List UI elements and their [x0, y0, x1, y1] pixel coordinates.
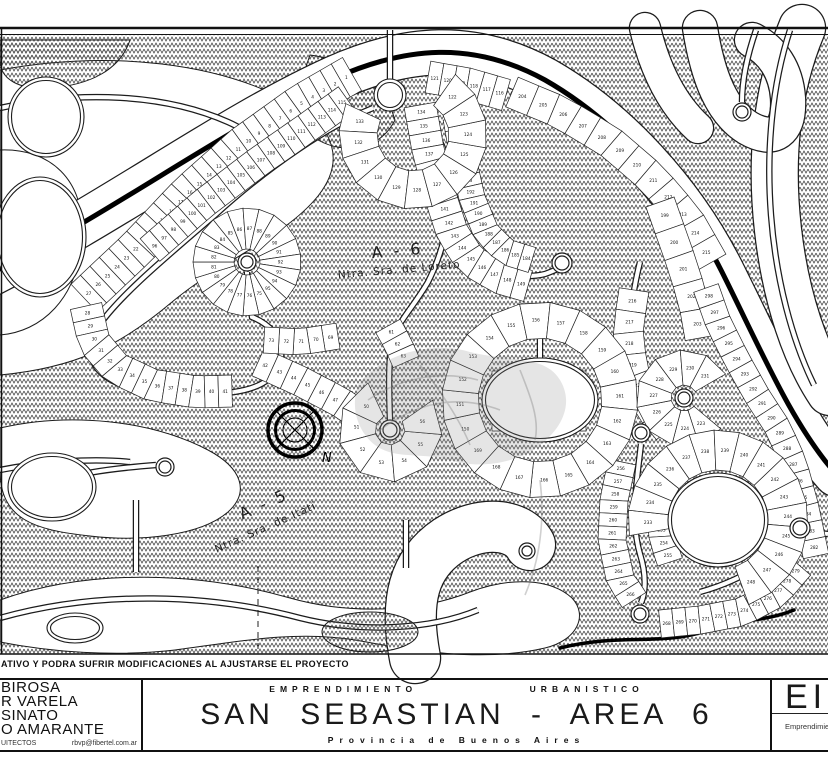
svg-text:233: 233: [644, 520, 652, 526]
svg-text:214: 214: [691, 230, 699, 236]
svg-text:128: 128: [413, 188, 421, 194]
svg-text:273: 273: [728, 612, 736, 618]
svg-text:168: 168: [492, 465, 500, 471]
svg-text:210: 210: [633, 163, 641, 169]
svg-text:244: 244: [784, 514, 792, 520]
svg-text:2: 2: [334, 81, 337, 87]
svg-text:187: 187: [492, 240, 500, 246]
svg-text:134: 134: [417, 110, 425, 116]
svg-text:97: 97: [161, 235, 167, 241]
svg-text:254: 254: [660, 541, 668, 547]
svg-text:7: 7: [279, 116, 282, 122]
svg-text:131: 131: [361, 159, 369, 165]
svg-text:88: 88: [256, 228, 262, 234]
svg-text:110: 110: [287, 136, 295, 142]
svg-text:161: 161: [616, 393, 624, 399]
svg-text:199: 199: [661, 213, 669, 219]
svg-text:242: 242: [771, 477, 779, 483]
svg-text:10: 10: [246, 139, 252, 145]
svg-text:43: 43: [277, 369, 283, 375]
svg-text:115: 115: [338, 100, 346, 106]
svg-text:276: 276: [764, 596, 772, 602]
svg-text:165: 165: [565, 472, 573, 478]
svg-text:87: 87: [247, 226, 253, 232]
svg-text:103: 103: [217, 188, 225, 194]
svg-text:46: 46: [319, 390, 325, 396]
svg-text:216: 216: [628, 298, 636, 304]
svg-text:261: 261: [608, 531, 616, 537]
disclaimer-note: ATIVO Y PODRA SUFRIR MODIFICACIONES AL A…: [1, 659, 349, 669]
svg-text:90: 90: [272, 241, 278, 247]
svg-text:28: 28: [85, 310, 91, 316]
svg-text:112: 112: [308, 122, 316, 128]
svg-text:13: 13: [216, 164, 222, 170]
svg-text:111: 111: [297, 129, 305, 135]
svg-text:235: 235: [654, 482, 662, 488]
svg-text:211: 211: [649, 178, 657, 184]
svg-text:209: 209: [616, 148, 624, 154]
svg-text:159: 159: [598, 347, 606, 353]
svg-text:85: 85: [228, 231, 234, 237]
svg-text:105: 105: [237, 173, 245, 179]
svg-text:225: 225: [664, 422, 672, 428]
svg-text:230: 230: [686, 366, 694, 372]
svg-text:26: 26: [95, 282, 101, 288]
svg-text:52: 52: [360, 447, 366, 453]
svg-text:82: 82: [211, 255, 217, 261]
svg-text:297: 297: [710, 310, 718, 316]
svg-text:47: 47: [333, 397, 339, 403]
profession-label: UITECTOS: [1, 740, 36, 747]
svg-text:288: 288: [783, 446, 791, 452]
svg-text:147: 147: [490, 272, 498, 278]
svg-text:3: 3: [322, 88, 325, 94]
svg-text:29: 29: [88, 324, 94, 330]
svg-text:141: 141: [440, 207, 448, 213]
svg-text:229: 229: [669, 367, 677, 373]
sheet-label: Emprendimient: [785, 722, 828, 731]
svg-text:108: 108: [267, 151, 275, 157]
svg-text:81: 81: [211, 265, 217, 271]
svg-text:265: 265: [619, 581, 627, 587]
svg-text:156: 156: [532, 318, 540, 324]
svg-text:204: 204: [518, 94, 526, 100]
svg-text:271: 271: [702, 617, 710, 623]
svg-text:5: 5: [300, 101, 303, 107]
svg-text:258: 258: [611, 492, 619, 498]
svg-text:259: 259: [610, 505, 618, 511]
svg-text:124: 124: [464, 132, 472, 138]
svg-text:11: 11: [236, 147, 242, 153]
svg-text:143: 143: [451, 233, 459, 239]
svg-text:287: 287: [789, 462, 797, 468]
svg-text:121: 121: [430, 76, 438, 82]
svg-text:215: 215: [702, 250, 710, 256]
svg-text:205: 205: [539, 103, 547, 109]
svg-text:117: 117: [483, 87, 491, 93]
svg-text:N: N: [322, 451, 332, 466]
svg-text:240: 240: [740, 453, 748, 459]
sheet-number-box: EI Emprendimient: [772, 680, 828, 750]
svg-text:130: 130: [374, 175, 382, 181]
watermark-sketch: [355, 348, 566, 465]
svg-text:208: 208: [598, 135, 606, 141]
svg-text:290: 290: [767, 416, 775, 422]
svg-text:241: 241: [757, 463, 765, 469]
svg-text:23: 23: [124, 255, 130, 261]
svg-text:51: 51: [354, 425, 360, 431]
svg-text:100: 100: [188, 211, 196, 217]
svg-text:70: 70: [313, 337, 319, 343]
svg-text:80: 80: [214, 274, 220, 280]
svg-text:31: 31: [98, 348, 104, 354]
svg-text:94: 94: [272, 279, 278, 285]
svg-text:109: 109: [277, 143, 285, 149]
svg-text:262: 262: [609, 544, 617, 550]
svg-text:1: 1: [345, 75, 348, 81]
svg-text:96: 96: [152, 244, 158, 250]
svg-text:24: 24: [114, 264, 120, 270]
svg-text:228: 228: [656, 377, 664, 383]
svg-text:22: 22: [133, 246, 139, 252]
svg-text:247: 247: [763, 568, 771, 574]
svg-text:33: 33: [117, 367, 123, 373]
svg-text:295: 295: [725, 341, 733, 347]
svg-text:266: 266: [626, 592, 634, 598]
svg-text:79: 79: [220, 282, 226, 288]
svg-text:167: 167: [515, 475, 523, 481]
architects-box: BIROSA R VARELA SINATO O AMARANTE UITECT…: [0, 680, 143, 750]
svg-text:133: 133: [356, 119, 364, 125]
svg-text:274: 274: [740, 608, 748, 614]
svg-text:36: 36: [155, 383, 161, 389]
svg-text:191: 191: [470, 201, 478, 207]
svg-text:93: 93: [276, 270, 282, 276]
svg-text:277: 277: [774, 588, 782, 594]
project-location: Provincia de Buenos Aires: [143, 735, 770, 745]
project-title-box: EMPRENDIMIENTO URBANISTICO SAN SEBASTIAN…: [143, 680, 772, 750]
svg-text:145: 145: [467, 256, 475, 262]
svg-text:160: 160: [611, 369, 619, 375]
svg-text:129: 129: [392, 185, 400, 191]
svg-text:83: 83: [214, 245, 220, 251]
svg-text:256: 256: [617, 466, 625, 472]
svg-text:189: 189: [479, 222, 487, 228]
svg-text:91: 91: [276, 250, 282, 256]
svg-text:158: 158: [579, 331, 587, 337]
title-block: BIROSA R VARELA SINATO O AMARANTE UITECT…: [0, 678, 828, 752]
svg-text:275: 275: [752, 602, 760, 608]
svg-text:238: 238: [701, 449, 709, 455]
svg-text:32: 32: [107, 358, 113, 364]
svg-text:234: 234: [646, 500, 654, 506]
svg-text:226: 226: [653, 410, 661, 416]
svg-text:27: 27: [86, 291, 92, 297]
svg-text:260: 260: [609, 518, 617, 524]
svg-text:92: 92: [278, 260, 284, 266]
svg-text:14: 14: [206, 173, 212, 179]
svg-text:62: 62: [395, 341, 401, 347]
svg-text:224: 224: [681, 426, 689, 432]
svg-text:291: 291: [758, 401, 766, 407]
svg-text:38: 38: [182, 388, 188, 394]
svg-text:84: 84: [220, 237, 226, 243]
svg-text:227: 227: [649, 393, 657, 399]
svg-text:217: 217: [625, 320, 633, 326]
svg-text:101: 101: [197, 203, 205, 209]
svg-text:39: 39: [195, 389, 201, 395]
svg-text:136: 136: [422, 138, 430, 144]
svg-text:149: 149: [517, 282, 525, 288]
site-plan-sheet: .lot{fill:#fff;stroke:#222;stroke-width:…: [0, 0, 828, 780]
svg-text:200: 200: [670, 240, 678, 246]
svg-text:25: 25: [105, 273, 111, 279]
svg-text:144: 144: [458, 245, 466, 251]
svg-text:116: 116: [495, 91, 503, 97]
svg-text:86: 86: [237, 227, 243, 233]
svg-text:77: 77: [237, 292, 243, 298]
svg-text:296: 296: [717, 326, 725, 332]
svg-text:98: 98: [171, 227, 177, 233]
svg-text:162: 162: [613, 418, 621, 424]
svg-text:9: 9: [258, 131, 261, 137]
svg-text:122: 122: [448, 94, 456, 100]
svg-text:113: 113: [318, 115, 326, 121]
svg-text:35: 35: [142, 379, 148, 385]
svg-text:99: 99: [180, 219, 186, 225]
svg-text:34: 34: [129, 373, 135, 379]
svg-text:40: 40: [209, 389, 215, 395]
svg-text:166: 166: [540, 478, 548, 484]
svg-text:12: 12: [226, 155, 232, 161]
svg-text:4: 4: [311, 94, 314, 100]
svg-text:61: 61: [389, 330, 395, 336]
svg-text:104: 104: [227, 180, 235, 186]
svg-text:231: 231: [701, 374, 709, 380]
svg-text:89: 89: [265, 233, 271, 239]
svg-text:293: 293: [741, 372, 749, 378]
svg-text:270: 270: [689, 618, 697, 624]
svg-text:73: 73: [269, 338, 275, 344]
svg-text:118: 118: [470, 83, 478, 89]
svg-text:185: 185: [511, 253, 519, 259]
svg-text:245: 245: [782, 534, 790, 540]
svg-text:54: 54: [401, 458, 407, 464]
svg-text:264: 264: [614, 569, 622, 575]
svg-text:76: 76: [247, 293, 253, 299]
svg-text:255: 255: [664, 553, 672, 559]
svg-text:132: 132: [354, 140, 362, 146]
svg-text:30: 30: [92, 337, 98, 343]
svg-text:184: 184: [522, 256, 530, 262]
svg-text:164: 164: [586, 460, 594, 466]
sheet-code: EI: [785, 680, 827, 717]
svg-text:154: 154: [486, 335, 494, 341]
project-type-label2: URBANISTICO: [530, 684, 644, 694]
svg-text:126: 126: [449, 170, 457, 176]
svg-text:135: 135: [420, 124, 428, 130]
svg-text:157: 157: [557, 320, 565, 326]
svg-text:243: 243: [780, 494, 788, 500]
svg-text:188: 188: [485, 232, 493, 238]
svg-text:102: 102: [207, 195, 215, 201]
svg-text:289: 289: [776, 431, 784, 437]
svg-text:148: 148: [503, 278, 511, 284]
svg-text:106: 106: [247, 165, 255, 171]
sheet-divider: [772, 713, 828, 714]
svg-text:71: 71: [298, 339, 304, 345]
svg-text:257: 257: [614, 479, 622, 485]
svg-text:186: 186: [501, 248, 509, 254]
svg-text:125: 125: [460, 152, 468, 158]
svg-text:75: 75: [256, 291, 262, 297]
svg-text:6: 6: [289, 108, 292, 114]
svg-text:269: 269: [676, 620, 684, 626]
svg-text:146: 146: [478, 265, 486, 271]
svg-text:201: 201: [679, 267, 687, 273]
svg-text:41: 41: [222, 389, 228, 395]
svg-text:78: 78: [228, 289, 234, 295]
svg-text:155: 155: [507, 323, 515, 329]
svg-text:282: 282: [810, 545, 818, 551]
svg-text:42: 42: [262, 363, 268, 369]
svg-text:123: 123: [460, 112, 468, 118]
svg-text:142: 142: [445, 220, 453, 226]
svg-text:69: 69: [328, 335, 334, 341]
svg-text:107: 107: [257, 158, 265, 164]
svg-text:45: 45: [305, 383, 311, 389]
svg-text:298: 298: [705, 294, 713, 300]
svg-text:127: 127: [433, 182, 441, 188]
svg-text:239: 239: [721, 448, 729, 454]
svg-text:223: 223: [697, 421, 705, 427]
svg-text:203: 203: [693, 322, 701, 328]
project-type-label: EMPRENDIMIENTO: [269, 684, 417, 694]
svg-text:218: 218: [625, 341, 633, 347]
svg-text:246: 246: [775, 552, 783, 558]
firm-email: rbvp@fibertel.com.ar: [72, 740, 137, 747]
svg-text:279: 279: [792, 569, 800, 575]
svg-text:268: 268: [662, 621, 670, 627]
svg-text:292: 292: [749, 387, 757, 393]
svg-text:207: 207: [579, 123, 587, 129]
svg-text:137: 137: [425, 152, 433, 158]
svg-text:163: 163: [603, 441, 611, 447]
svg-text:114: 114: [328, 108, 336, 114]
svg-text:248: 248: [747, 579, 755, 585]
svg-text:272: 272: [715, 614, 723, 620]
svg-text:53: 53: [379, 460, 385, 466]
svg-text:236: 236: [666, 467, 674, 473]
svg-text:190: 190: [474, 211, 482, 217]
svg-text:37: 37: [168, 386, 174, 392]
svg-text:72: 72: [284, 339, 290, 345]
svg-text:237: 237: [682, 455, 690, 461]
svg-text:206: 206: [559, 112, 567, 118]
svg-text:44: 44: [291, 376, 297, 382]
svg-text:294: 294: [732, 356, 740, 362]
svg-text:8: 8: [268, 124, 271, 130]
svg-text:263: 263: [612, 556, 620, 562]
project-title: SAN SEBASTIAN - AREA 6: [143, 700, 770, 730]
svg-text:95: 95: [265, 286, 271, 292]
svg-text:192: 192: [466, 190, 474, 196]
architect-name: O AMARANTE: [1, 723, 141, 737]
